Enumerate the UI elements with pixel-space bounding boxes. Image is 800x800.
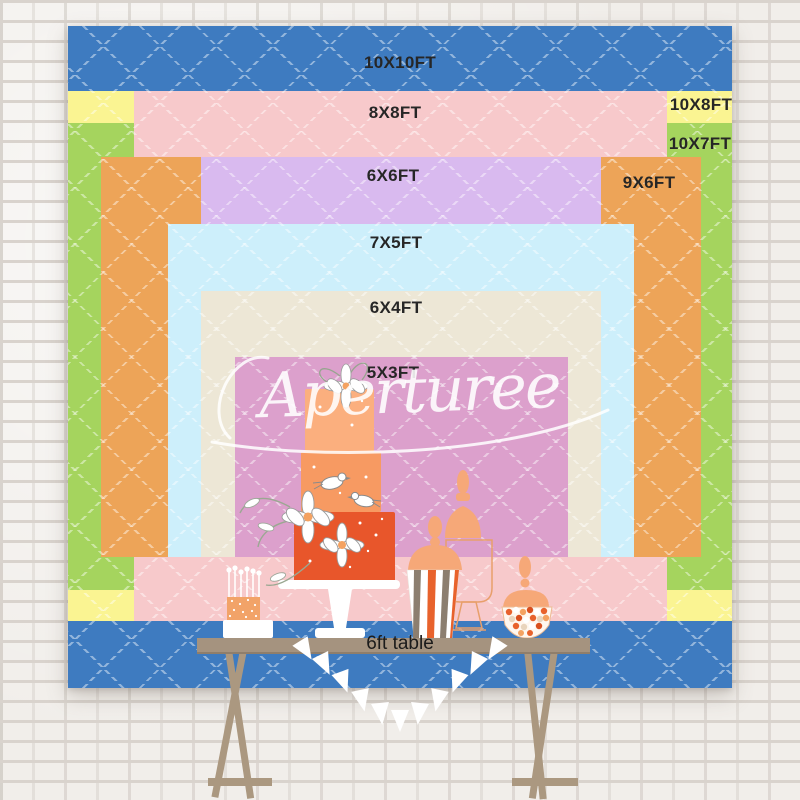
bunting-flag [391, 710, 409, 732]
bunting-flag [409, 702, 429, 726]
size-label-6x6ft: 6X6FT [313, 166, 473, 186]
table-size-label: 6ft table [320, 633, 480, 655]
size-label-10x8ft: 10X8FT [621, 95, 781, 115]
three-tier-cake [240, 363, 400, 638]
size-label-6x4ft: 6X4FT [316, 298, 476, 318]
confetti-candy-bowl [502, 556, 552, 638]
size-label-10x10ft: 10X10FT [320, 53, 480, 73]
size-label-10x7ft: 10X7FT [620, 134, 780, 154]
table-crossbar [512, 778, 578, 786]
backdrop-size-chart: { "sizes": [ {"label": "10X10FT", "color… [0, 0, 800, 800]
table-crossbar [208, 778, 272, 786]
candle-cake [223, 565, 273, 638]
size-label-8x8ft: 8X8FT [315, 103, 475, 123]
bunting-flag [371, 702, 391, 726]
dessert-table-illustration [190, 355, 570, 645]
size-label-7x5ft: 7X5FT [316, 233, 476, 253]
size-label-9x6ft: 9X6FT [569, 173, 729, 193]
cake-stand [278, 580, 400, 638]
